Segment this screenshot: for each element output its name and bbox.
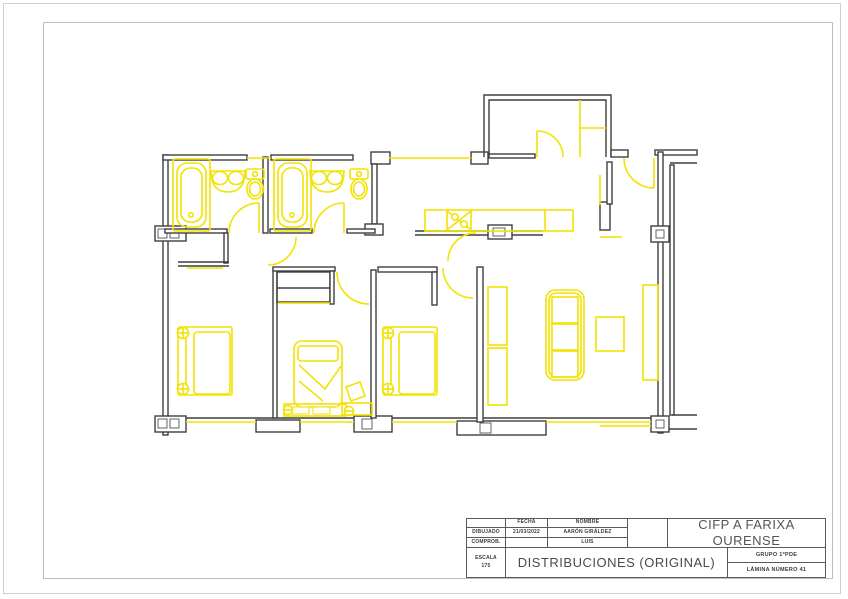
school-name-box: CIFP A FARIXA OURENSE — [667, 518, 826, 548]
floor-plan-svg — [0, 0, 848, 599]
school-line1: CIFP A FARIXA — [698, 518, 795, 532]
lamina-cell: LÁMINA NÚMERO 41 — [727, 562, 826, 578]
escala-box: ESCALA 175 — [466, 547, 506, 578]
escala-value: 175 — [482, 564, 491, 570]
drawing-sheet: { "page": { "background": "#ffffff", "ou… — [0, 0, 848, 599]
floor-plan-shapes — [155, 95, 697, 435]
school-line2: OURENSE — [713, 534, 781, 548]
escala-label: ESCALA — [475, 556, 497, 562]
title-block-spacer-cell — [627, 518, 668, 548]
grupo-cell: GRUPO 1ºPDE — [727, 547, 826, 563]
drawing-title: DISTRIBUCIONES (ORIGINAL) — [505, 547, 728, 578]
